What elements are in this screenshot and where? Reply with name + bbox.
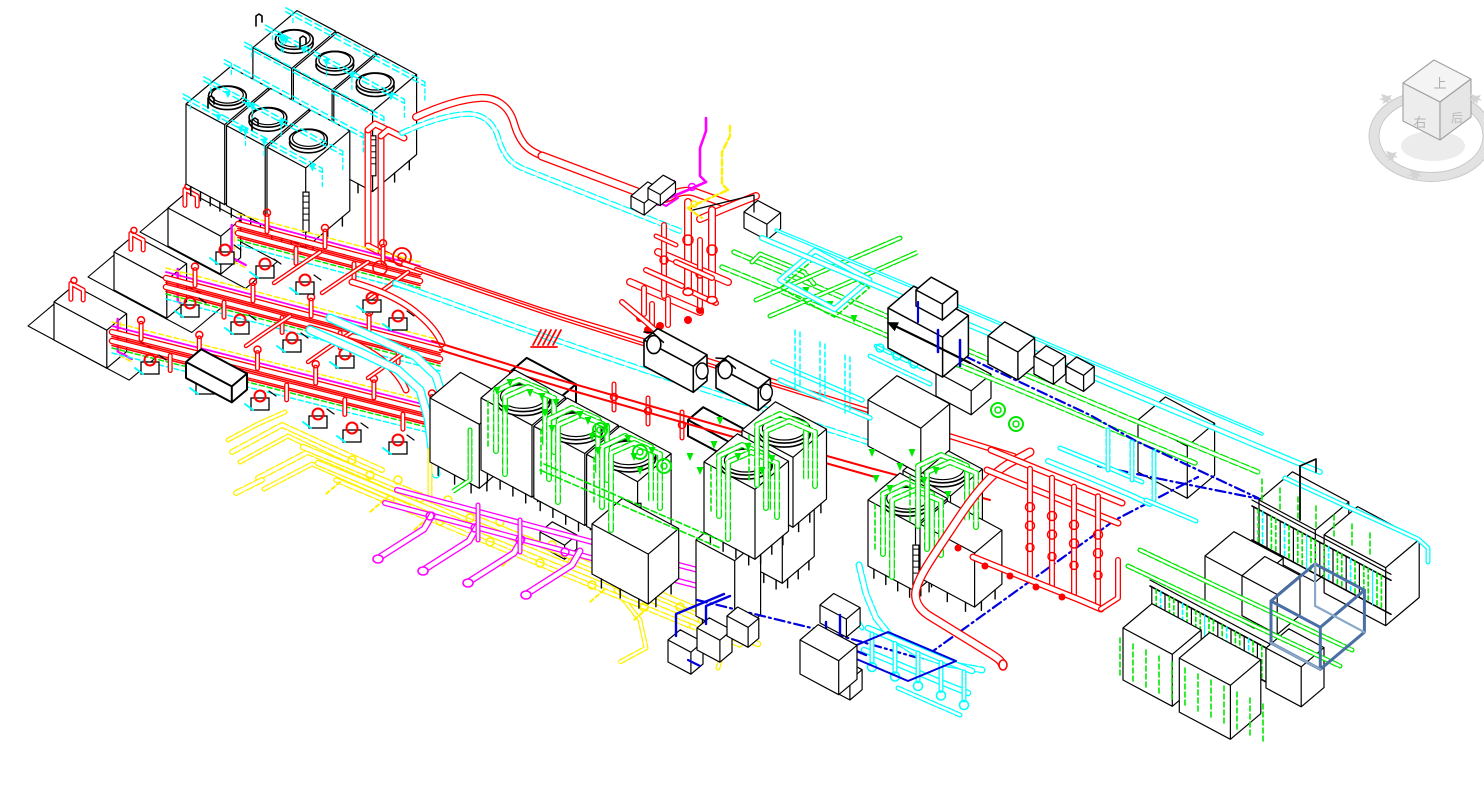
svg-text:右: 右 bbox=[1413, 115, 1426, 130]
svg-text:后: 后 bbox=[1451, 111, 1463, 125]
svg-text:上: 上 bbox=[1433, 76, 1446, 91]
